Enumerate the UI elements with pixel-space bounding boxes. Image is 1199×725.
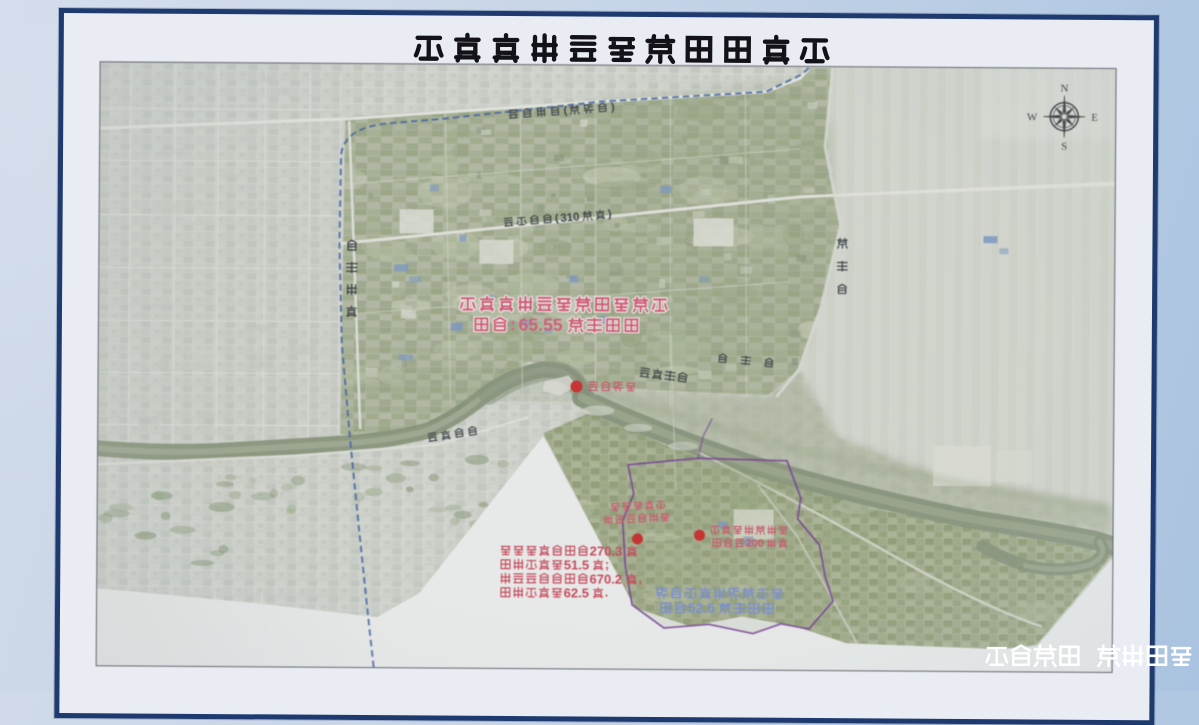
svg-text:.: . [605, 586, 609, 600]
svg-text:;: ; [605, 558, 609, 572]
svg-text::: : [510, 315, 516, 334]
svg-text:200: 200 [746, 538, 764, 550]
svg-text:310: 310 [560, 211, 580, 224]
svg-text:S: S [1061, 141, 1067, 153]
svg-text:51.5: 51.5 [564, 557, 589, 572]
svg-text:65.55: 65.55 [518, 315, 563, 335]
svg-text:E: E [1091, 112, 1098, 124]
svg-text:N: N [1060, 83, 1068, 95]
svg-text:W: W [1027, 111, 1038, 123]
svg-text:,: , [638, 572, 642, 586]
svg-text:62.5: 62.5 [564, 585, 589, 600]
svg-text:670.2: 670.2 [589, 571, 622, 586]
svg-text:270.3: 270.3 [590, 543, 623, 558]
svg-text:52.5: 52.5 [688, 600, 716, 616]
